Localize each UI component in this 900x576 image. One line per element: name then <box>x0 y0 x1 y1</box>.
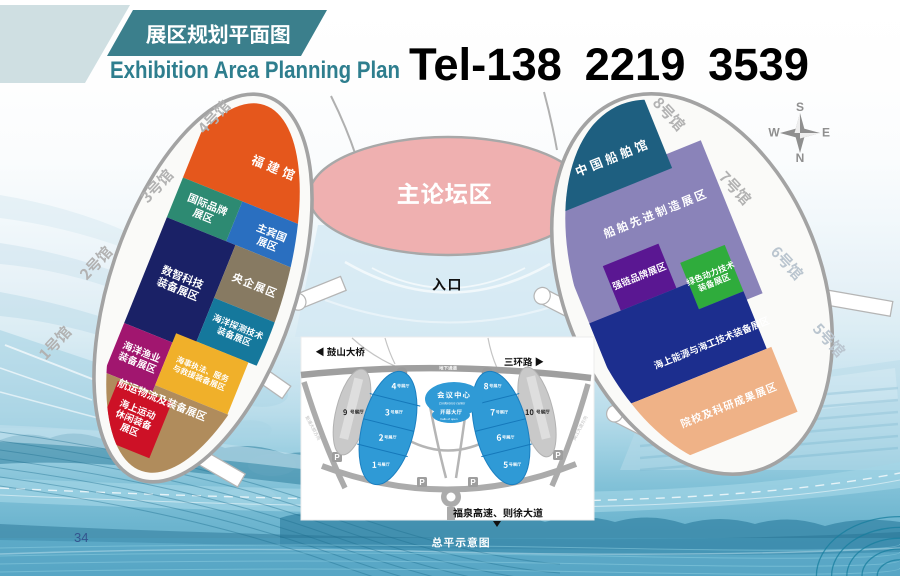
svg-text:P: P <box>555 451 561 460</box>
svg-text:W: W <box>768 126 780 140</box>
svg-text:P: P <box>470 478 476 487</box>
svg-text:P: P <box>334 453 340 462</box>
svg-text:E: E <box>822 126 830 140</box>
svg-text:34: 34 <box>74 530 88 545</box>
svg-text:halls of open: halls of open <box>440 417 457 421</box>
svg-text:P: P <box>419 478 425 487</box>
svg-text:N: N <box>796 151 805 165</box>
svg-text:S: S <box>796 100 804 114</box>
svg-text:Tel-138 2219 3539: Tel-138 2219 3539 <box>409 39 809 90</box>
svg-text:Exhibition Area Planning Plan: Exhibition Area Planning Plan <box>110 57 400 84</box>
svg-text:Conference center: Conference center <box>439 402 466 406</box>
